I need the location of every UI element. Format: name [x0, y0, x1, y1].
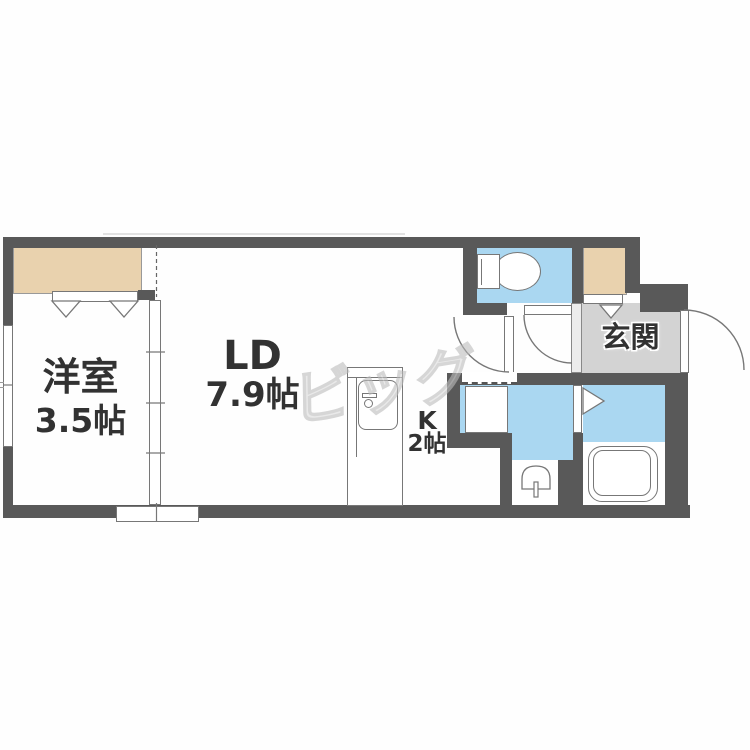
window-bottom: [116, 506, 199, 522]
wall-topright-vertical: [625, 237, 640, 293]
shoe-closet-door-leaf: [583, 294, 623, 304]
bath-door-bar: [573, 385, 582, 433]
entry-door-arc: [684, 310, 744, 370]
wall-ld-toilet: [463, 248, 477, 303]
toilet-door-leaf: [524, 305, 572, 315]
toilet-door-arc: [524, 315, 572, 363]
wall-bath-left: [573, 433, 583, 460]
bathtub-inner: [593, 450, 651, 496]
entrance-label: 玄関: [583, 323, 678, 352]
wall-toilet-right: [572, 243, 583, 303]
wall-below-toilet: [463, 303, 507, 315]
closet-door-v2: [110, 301, 138, 317]
wall-bottom: [3, 505, 690, 518]
wall-partition-stub: [138, 290, 155, 300]
wall-right-lower: [665, 373, 688, 518]
bathroom-floor: [583, 385, 665, 442]
wall-washer-left: [500, 448, 512, 505]
wall-below-washbasin: [447, 433, 512, 448]
wall-top: [3, 237, 640, 248]
western-room-label: 洋室: [13, 358, 148, 396]
bathtub-icon: [588, 446, 658, 502]
toilet-bowl-icon: [494, 252, 541, 291]
wall-topright-step: [640, 284, 688, 312]
kitchen-size: 2帖: [398, 433, 456, 456]
shoe-closet-floor: [583, 243, 627, 295]
closet-door-leaf: [52, 291, 138, 302]
washroom-floor-lower: [512, 433, 573, 460]
washer-space-floor: [512, 460, 558, 505]
toilet-tank-line: [481, 259, 482, 285]
entrance-step: [571, 303, 582, 373]
entry-door-leaf: [680, 310, 689, 373]
upper-floor-line: [103, 233, 405, 235]
partition-track: [149, 300, 161, 505]
western-room-size: 3.5帖: [13, 404, 148, 437]
wall-washer-right: [558, 460, 583, 505]
floor-plan: 洋室 3.5帖 LD 7.9帖 K 2帖 玄関 ビッグ: [0, 0, 750, 750]
ld-door-leaf: [504, 316, 514, 373]
closet-western-floor: [13, 245, 142, 294]
window-left: [3, 325, 13, 447]
closet-door-v1: [52, 301, 80, 317]
